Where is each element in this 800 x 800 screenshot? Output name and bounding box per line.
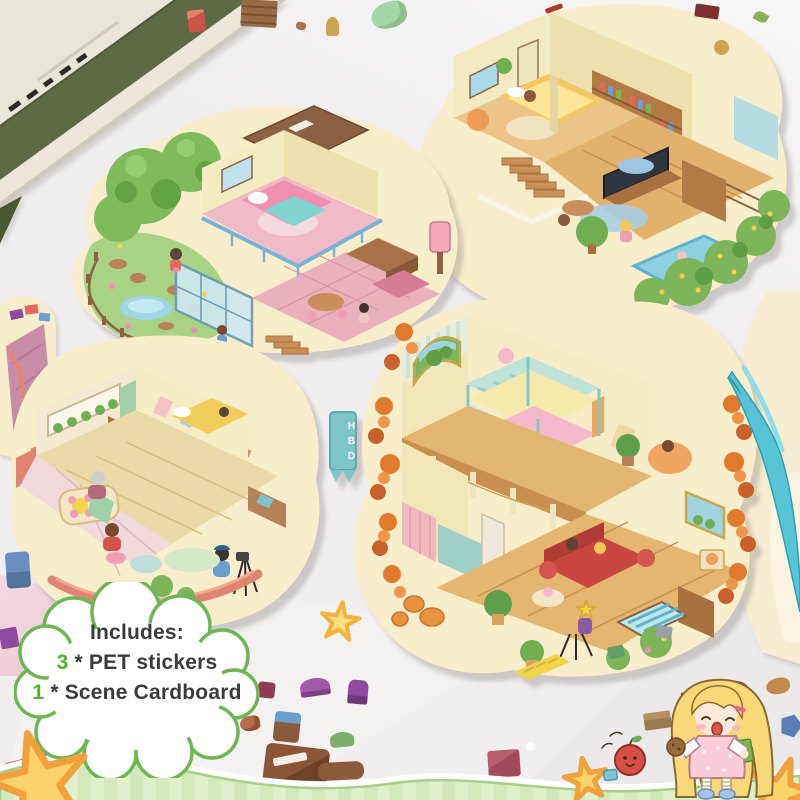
callout-item-stickers: 3 * PET stickers (30, 648, 244, 678)
mini-sticker-red-cube (187, 9, 206, 33)
mini-sticker-wood-shelf (240, 0, 277, 28)
girl-shoe (698, 789, 714, 799)
callout-qty: 3 (57, 651, 69, 674)
mini-sticker-purple-grinder (347, 679, 369, 705)
star-small (316, 596, 364, 644)
product-photo-dollhouse-stickers: Includes: 3 * PET stickers 1 * Scene Car… (0, 0, 800, 800)
mini-sticker-gold-ball (714, 40, 729, 55)
tweezers (710, 350, 800, 620)
blonde-girl-character (650, 674, 788, 800)
callout-label: * Scene Cardboard (50, 681, 241, 704)
callout-text: Includes: 3 * PET stickers 1 * Scene Car… (30, 618, 244, 708)
mini-sticker-gold-lamp (326, 17, 339, 36)
callout-label: * PET stickers (75, 651, 218, 674)
girl-cookie (667, 738, 685, 756)
star-big (0, 724, 118, 800)
girl-shoe (719, 789, 735, 799)
hbd-banner-text: HBD (341, 421, 357, 466)
callout-qty: 1 (32, 681, 44, 704)
scene-autumn-loft-house (318, 286, 773, 698)
callout-item-cardboard: 1 * Scene Cardboard (30, 678, 244, 708)
callout-title: Includes: (30, 618, 244, 648)
apple-sticker (596, 726, 658, 788)
girl-mouth (712, 723, 722, 736)
mini-sticker-grey-box (655, 625, 673, 639)
